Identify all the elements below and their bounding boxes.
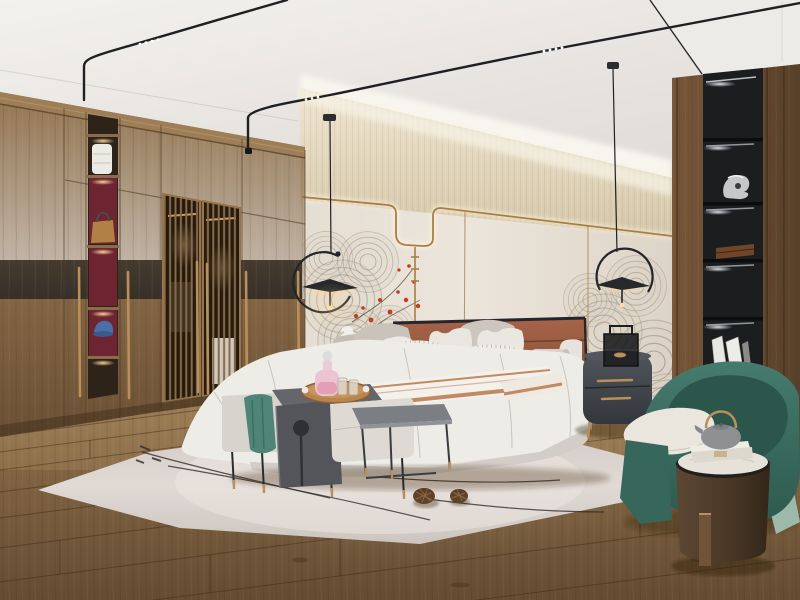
lattice-doors <box>163 194 240 402</box>
display-shelf-column <box>703 68 763 385</box>
sculpture-hole <box>735 183 741 189</box>
ceiling-mount <box>607 62 619 69</box>
ceiling-mount <box>323 114 336 121</box>
tray-handle-ball <box>363 386 370 393</box>
bedroom-scene <box>0 0 800 600</box>
cylinder-body <box>676 466 770 562</box>
bedroom-photo <box>0 0 800 600</box>
display-niche-column <box>87 114 119 399</box>
cylinder-notch <box>699 514 711 566</box>
folded-towels <box>92 144 112 174</box>
track-end-cap <box>245 148 252 154</box>
ring-joint <box>335 251 340 256</box>
tray-handle-ball <box>302 387 309 394</box>
wall-wash <box>302 283 362 327</box>
lattice-slats <box>163 194 240 402</box>
bulb <box>620 303 624 307</box>
box-label <box>714 451 727 457</box>
